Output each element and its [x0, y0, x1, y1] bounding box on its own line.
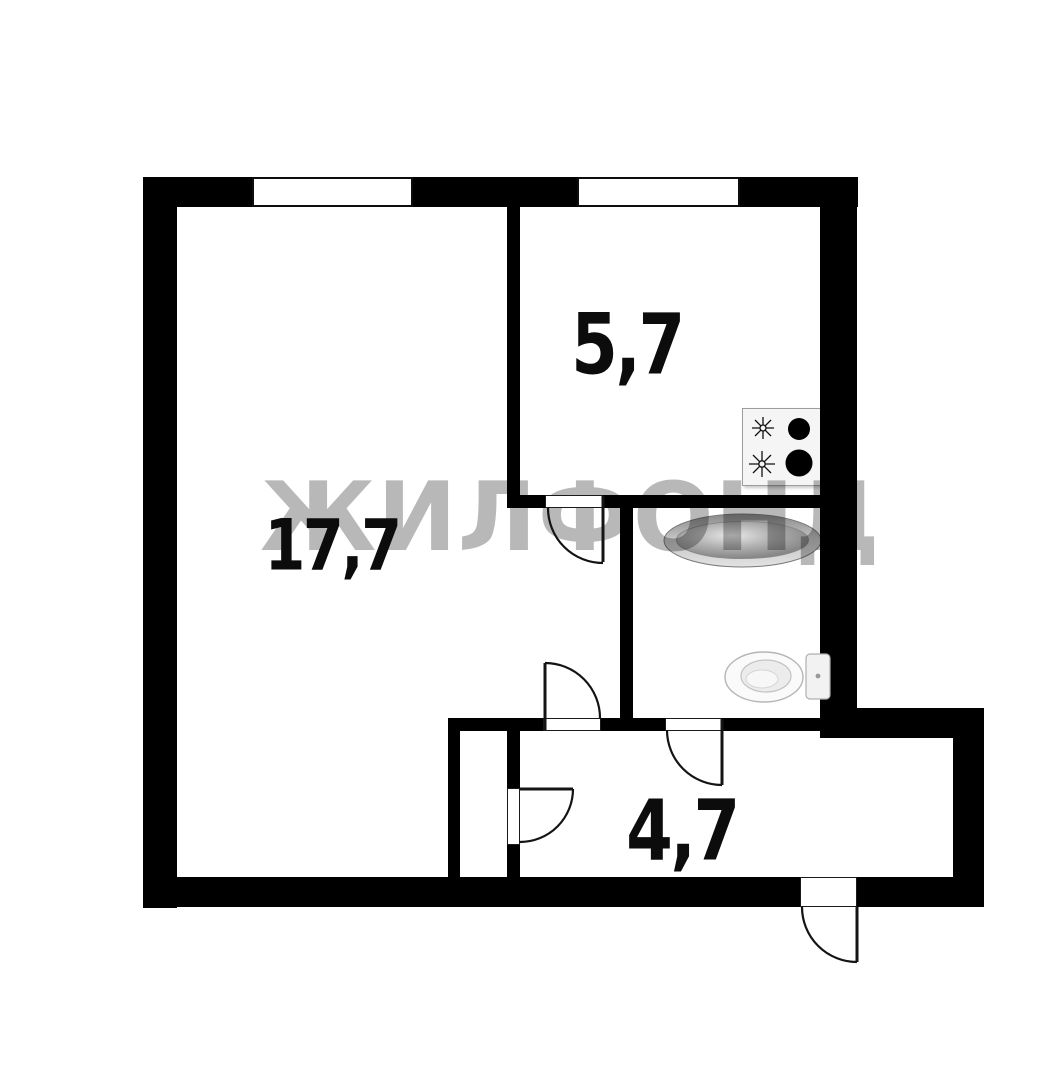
living-room-area-label: 17,7 — [264, 511, 399, 581]
wall-top — [143, 177, 858, 207]
hallway-area-label: 4,7 — [626, 788, 738, 872]
entry-door — [802, 907, 857, 962]
entry-door-threshold — [800, 877, 857, 907]
floor-plan: ЖИЛФОНД — [0, 0, 1057, 1080]
kitchen-area-label: 5,7 — [571, 302, 683, 386]
bathroom-door-threshold — [665, 718, 722, 731]
wall-extension-right — [953, 738, 984, 877]
gas-burner-icon — [752, 417, 774, 439]
wall-living-kitchen-divider — [507, 207, 520, 508]
wall-closet-right-upper — [507, 731, 520, 788]
window-living-room — [252, 177, 413, 207]
wall-hallway-top-a — [448, 718, 543, 731]
wall-closet-right-lower — [507, 845, 520, 877]
electric-burner-icon — [788, 418, 810, 440]
passage-door-threshold — [543, 718, 601, 731]
wall-extension-top — [857, 708, 984, 738]
wall-kitchen-bottom-left — [507, 495, 545, 508]
window-kitchen — [577, 177, 740, 207]
kitchen-door-threshold — [545, 495, 603, 508]
wall-bottom — [143, 877, 984, 907]
toilet-icon — [720, 646, 834, 708]
wall-bathroom-left — [620, 508, 633, 718]
wall-left — [143, 177, 177, 908]
wall-hallway-top-c — [722, 718, 827, 731]
closet-door-threshold — [507, 788, 520, 845]
wall-closet-left — [448, 731, 460, 877]
wall-hallway-top-b — [601, 718, 665, 731]
wall-kitchen-bottom-right — [603, 495, 820, 508]
closet-door — [520, 789, 573, 842]
